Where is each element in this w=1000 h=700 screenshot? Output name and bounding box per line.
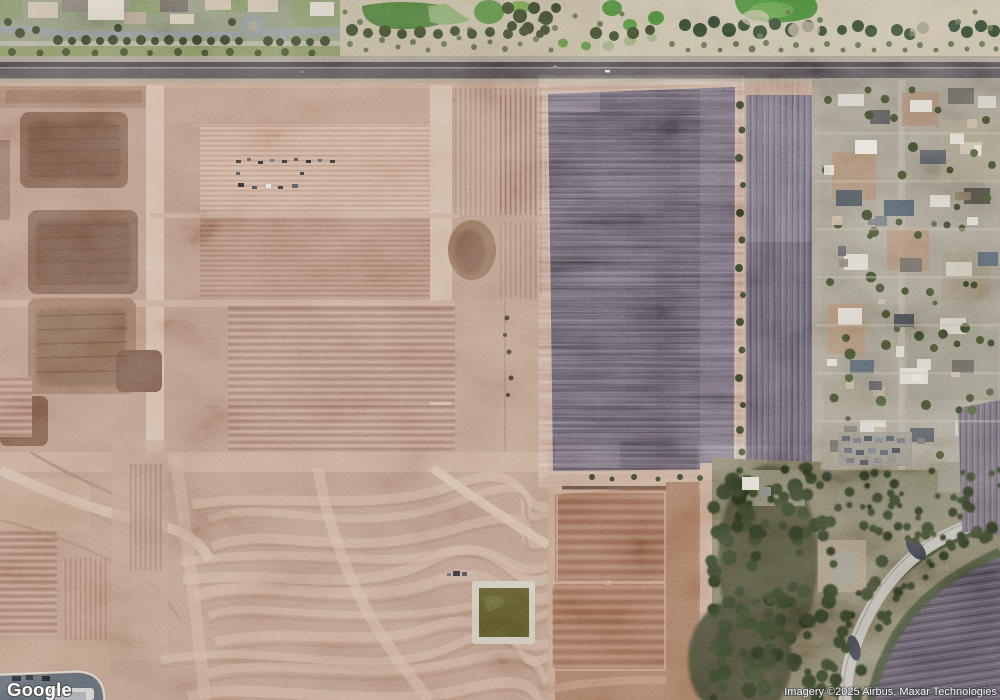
svg-text:Imagery ©2025 Airbus, Maxar Te: Imagery ©2025 Airbus, Maxar Technologies [784, 686, 997, 698]
svg-text:Google: Google [7, 679, 72, 700]
